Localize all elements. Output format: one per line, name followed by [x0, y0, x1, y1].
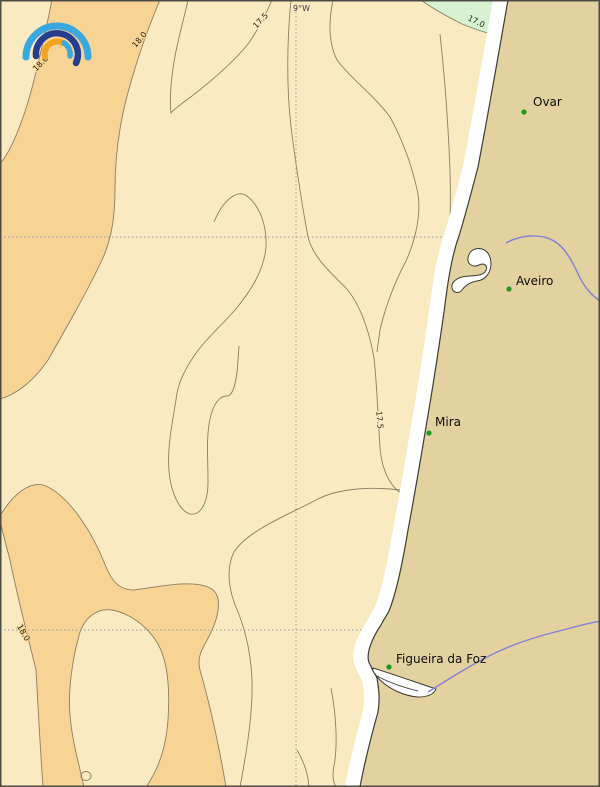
city-dot-ovar [521, 109, 526, 114]
city-label-aveiro: Aveiro [516, 274, 553, 288]
map-canvas: Ovar Aveiro Mira Figueira da Foz 18.0 18… [0, 0, 600, 787]
city-label-ovar: Ovar [533, 95, 562, 109]
city-label-figueira-da-foz: Figueira da Foz [396, 652, 486, 666]
city-label-mira: Mira [435, 415, 461, 429]
city-dot-mira [426, 430, 431, 435]
isotherm-label-175-mira: 17.5 [374, 411, 385, 430]
sst-map: Ovar Aveiro Mira Figueira da Foz 18.0 18… [0, 0, 600, 787]
city-dot-aveiro [506, 286, 511, 291]
meridian-label: 9°W [293, 4, 310, 13]
city-dot-figueira-da-foz [386, 664, 391, 669]
